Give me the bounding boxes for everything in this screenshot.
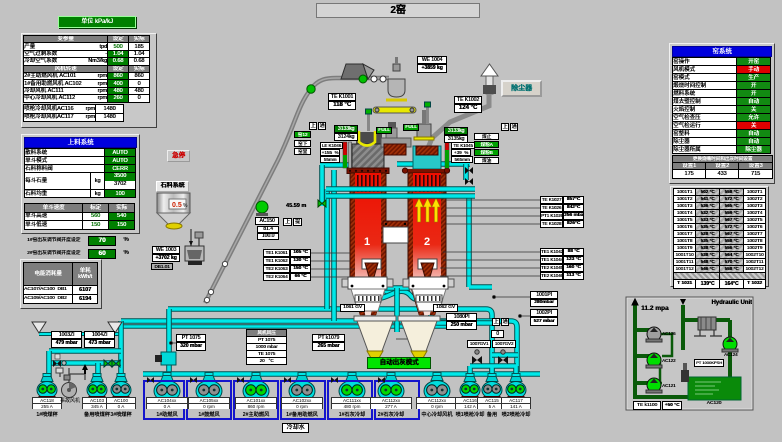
svg-text:0.5: 0.5 [172, 202, 182, 209]
svg-text:%: % [183, 203, 188, 209]
svg-text:2: 2 [424, 236, 430, 248]
svg-text:1: 1 [364, 236, 370, 248]
